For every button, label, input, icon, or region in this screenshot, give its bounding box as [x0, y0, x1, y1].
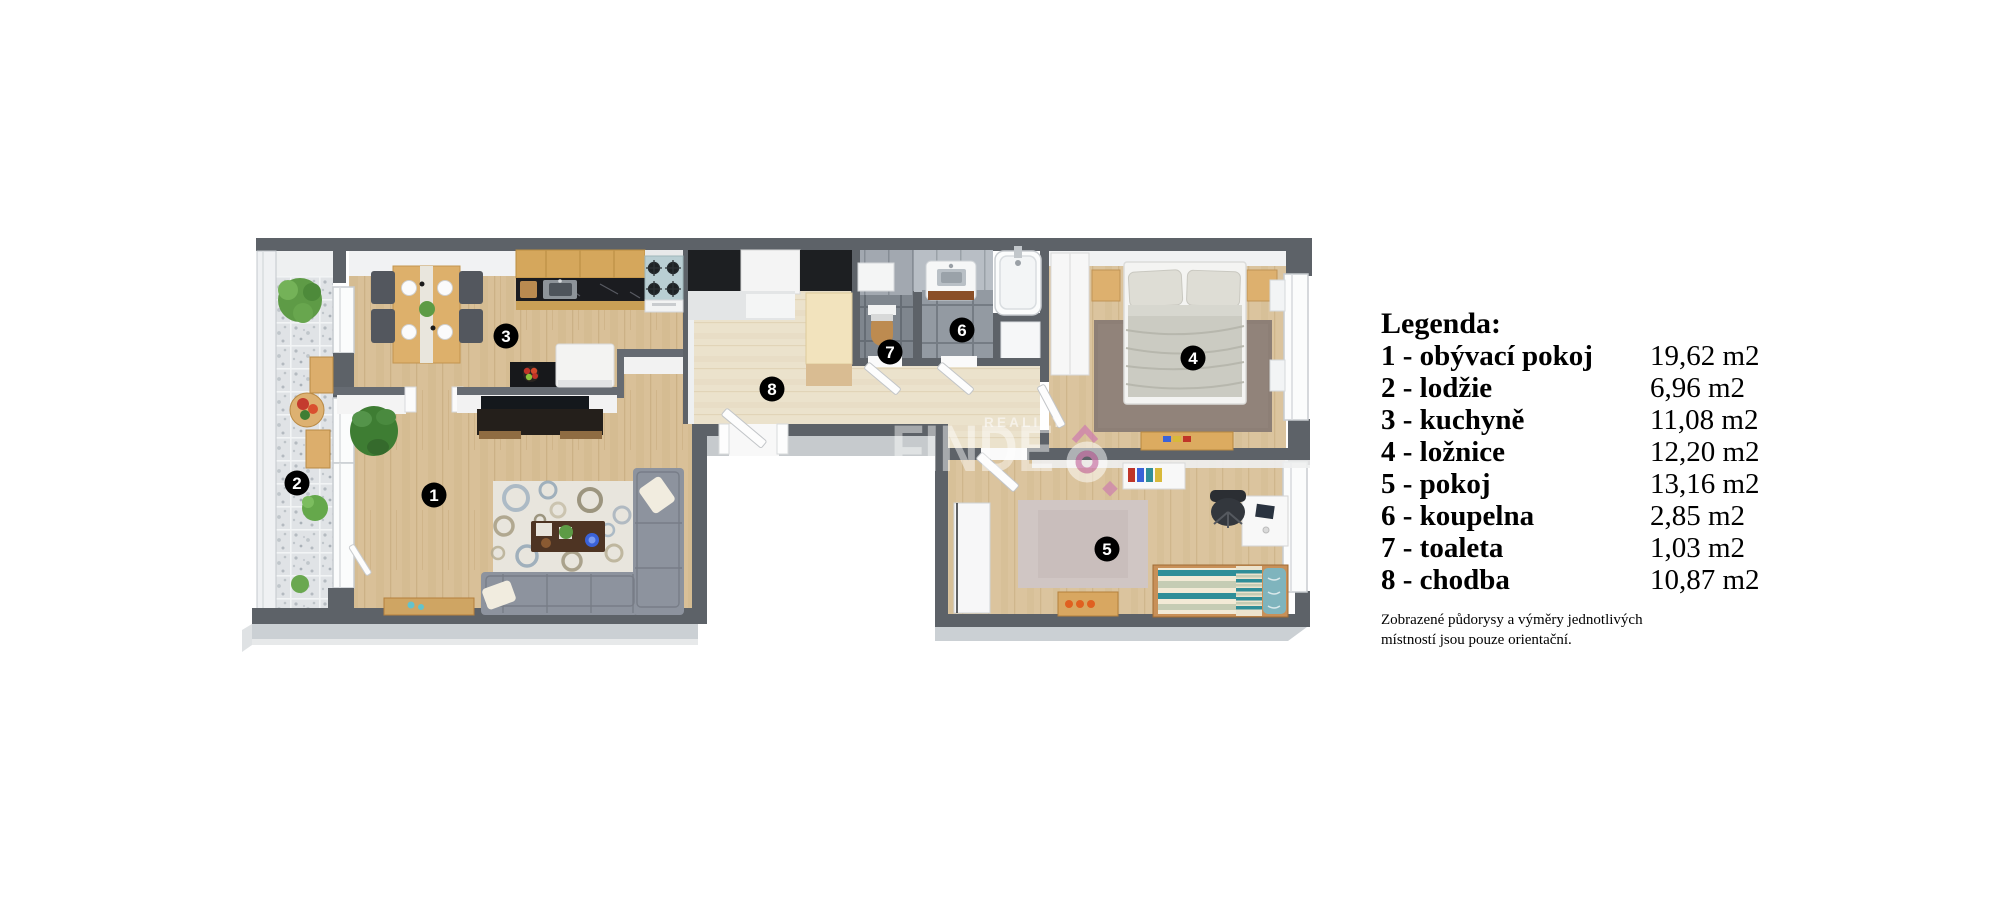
svg-text:10,87 m2: 10,87 m2: [1650, 564, 1760, 596]
svg-text:2 - lodžie: 2 - lodžie: [1381, 372, 1492, 404]
svg-text:12,20 m2: 12,20 m2: [1650, 436, 1760, 468]
svg-text:4 - ložnice: 4 - ložnice: [1381, 436, 1505, 468]
svg-text:4: 4: [1188, 349, 1198, 368]
svg-text:FINDE: FINDE: [891, 411, 1054, 485]
svg-text:6: 6: [957, 321, 966, 340]
svg-text:3: 3: [501, 327, 510, 346]
svg-text:1: 1: [429, 486, 438, 505]
svg-text:6 - koupelna: 6 - koupelna: [1381, 500, 1535, 532]
svg-text:3 - kuchyně: 3 - kuchyně: [1381, 404, 1525, 436]
svg-text:1,03 m2: 1,03 m2: [1650, 532, 1745, 564]
svg-text:1 - obývací pokoj: 1 - obývací pokoj: [1381, 340, 1593, 372]
svg-text:13,16 m2: 13,16 m2: [1650, 468, 1760, 500]
svg-text:místností jsou pouze orientačn: místností jsou pouze orientační.: [1381, 632, 1572, 648]
svg-text:8: 8: [767, 380, 776, 399]
svg-text:2: 2: [292, 474, 301, 493]
svg-text:6,96 m2: 6,96 m2: [1650, 372, 1745, 404]
svg-text:7: 7: [885, 343, 894, 362]
svg-text:11,08 m2: 11,08 m2: [1650, 404, 1758, 436]
svg-text:7 - toaleta: 7 - toaleta: [1381, 532, 1504, 564]
svg-text:5: 5: [1102, 540, 1111, 559]
svg-text:8 - chodba: 8 - chodba: [1381, 564, 1510, 596]
svg-text:5 - pokoj: 5 - pokoj: [1381, 468, 1491, 500]
svg-text:Legenda:: Legenda:: [1381, 307, 1501, 340]
svg-text:Zobrazené půdorysy a výměry je: Zobrazené půdorysy a výměry jednotlivých: [1381, 612, 1643, 628]
svg-text:19,62 m2: 19,62 m2: [1650, 340, 1760, 372]
svg-text:2,85 m2: 2,85 m2: [1650, 500, 1745, 532]
